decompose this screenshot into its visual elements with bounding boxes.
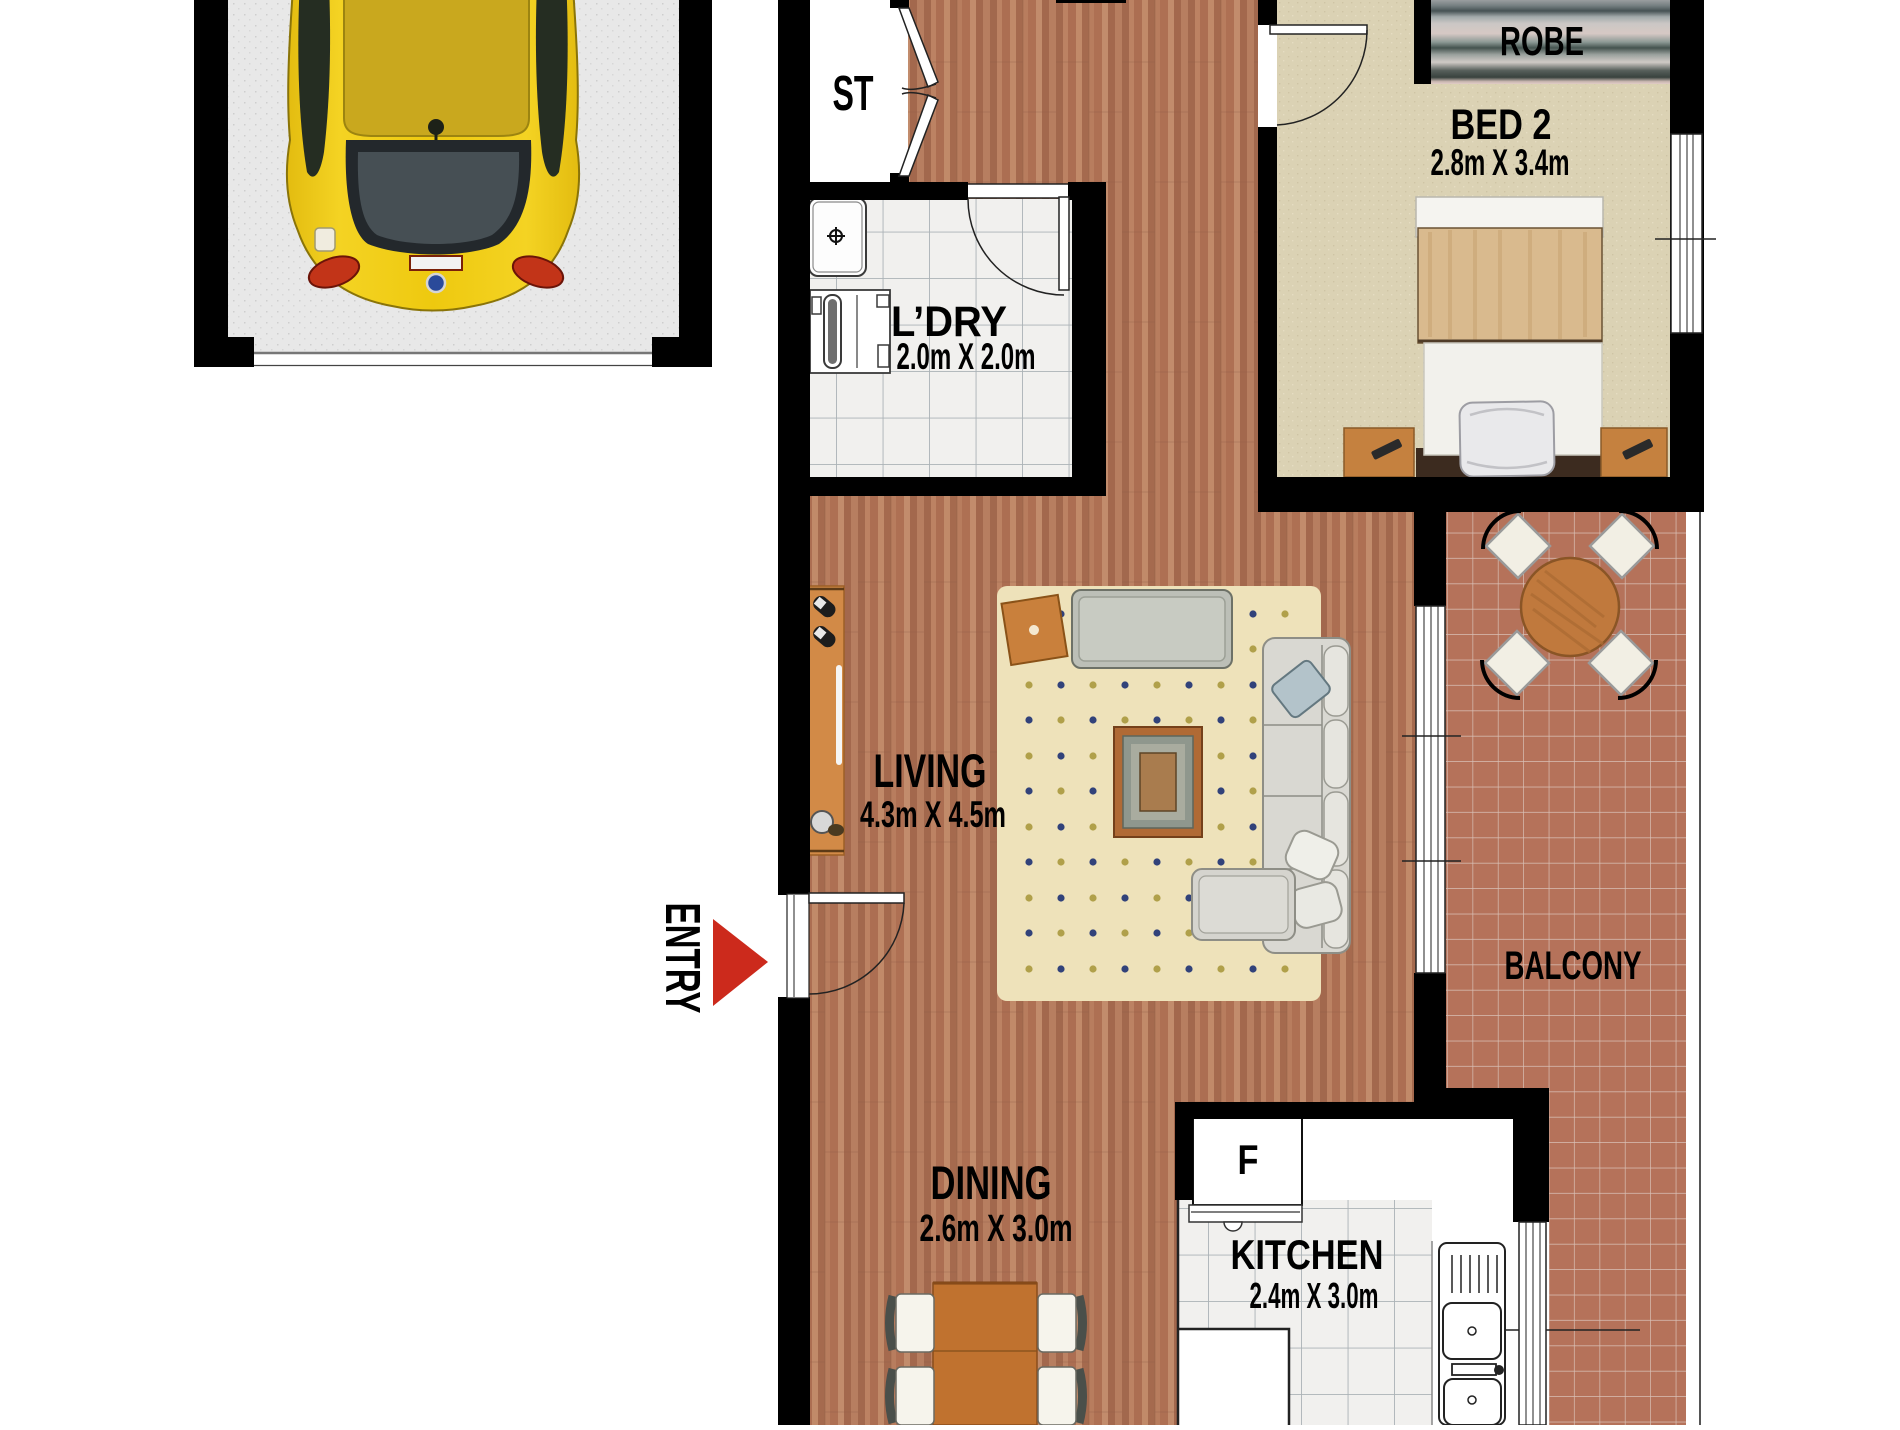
svg-text:F: F — [1238, 1136, 1259, 1183]
svg-text:BALCONY: BALCONY — [1505, 944, 1642, 988]
svg-text:4.3m X 4.5m: 4.3m X 4.5m — [860, 794, 1006, 835]
svg-text:ENTRY: ENTRY — [655, 903, 709, 1014]
svg-text:2.0m X 2.0m: 2.0m X 2.0m — [897, 336, 1036, 377]
svg-text:LIVING: LIVING — [874, 744, 987, 797]
svg-text:ST: ST — [833, 67, 874, 121]
svg-text:2.4m X 3.0m: 2.4m X 3.0m — [1250, 1275, 1379, 1316]
svg-text:2.8m X 3.4m: 2.8m X 3.4m — [1431, 142, 1570, 183]
svg-text:KITCHEN: KITCHEN — [1231, 1231, 1384, 1278]
svg-text:DINING: DINING — [931, 1156, 1052, 1209]
svg-text:ROBE: ROBE — [1500, 18, 1584, 64]
svg-text:2.6m X 3.0m: 2.6m X 3.0m — [920, 1208, 1073, 1250]
